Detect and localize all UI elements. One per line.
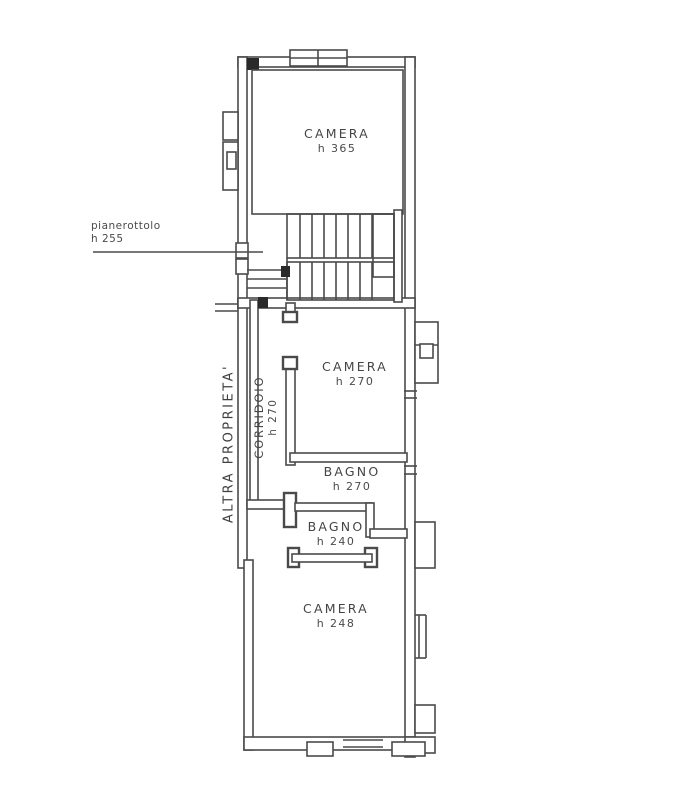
left-landing-window	[236, 243, 248, 274]
room-name: CORRIDOIO	[253, 347, 267, 487]
floor-plan-page: CAMERA h 365 CAMERA h 270 BAGNO h 270 BA…	[0, 0, 686, 797]
landing-name: pianerottolo	[91, 220, 161, 233]
chimney-block	[247, 58, 259, 70]
door-jambs	[283, 312, 377, 567]
adjacent-property-label: ALTRA PROPRIETA'	[222, 294, 237, 594]
floor-plan-drawing	[0, 0, 686, 797]
room-height: h 270	[267, 347, 280, 487]
right-pilaster-lower	[415, 705, 435, 733]
bathroom-walls	[290, 453, 407, 562]
landing-height: h 255	[91, 233, 161, 246]
right-balcony	[415, 322, 438, 383]
room-label-corridoio: CORRIDOIO h 270	[253, 347, 279, 487]
landing-annotation: pianerottolo h 255	[91, 220, 161, 245]
right-wall-window-lower	[415, 615, 426, 658]
left-pilasters	[223, 112, 238, 190]
camera-top-inner-outline	[252, 70, 403, 214]
right-pilaster-upper	[415, 522, 435, 568]
top-window	[290, 50, 347, 66]
staircase	[247, 210, 402, 308]
